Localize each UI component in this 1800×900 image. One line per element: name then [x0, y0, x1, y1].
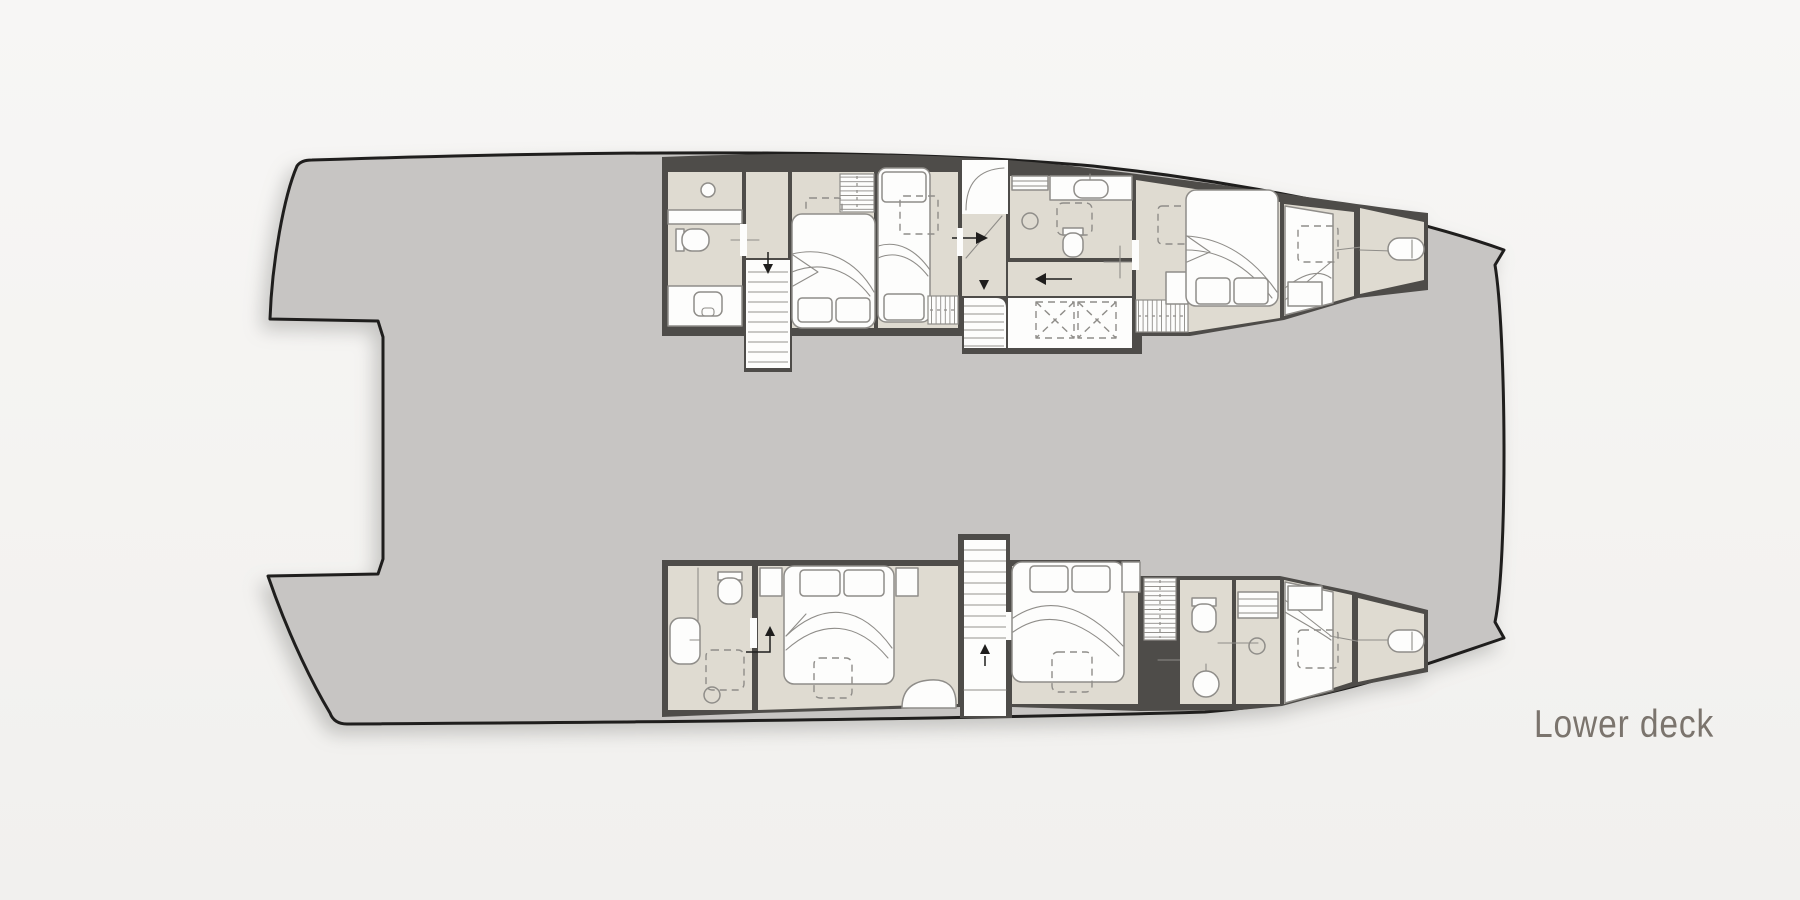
nightstand [1122, 562, 1140, 592]
shelf [1238, 592, 1278, 618]
room-aft-bathroom-starboard [668, 566, 752, 710]
shelf [1012, 176, 1048, 190]
toilet [718, 572, 742, 604]
berth-bed [878, 168, 930, 322]
room-aft-cabin-port [792, 172, 875, 328]
double-bed [784, 566, 894, 684]
toilet [1192, 598, 1216, 632]
vanity-sink [668, 286, 742, 326]
floor-plan-stage: Lower deck [0, 0, 1800, 900]
room-guest-cabin-port [878, 168, 958, 328]
berth-bed [1285, 206, 1333, 315]
nightstand [896, 568, 918, 596]
room-landing-port [1008, 262, 1132, 296]
room-cabin-starboard [1012, 562, 1140, 704]
pillow [884, 294, 924, 320]
lower-deck-floor-plan [0, 0, 1800, 900]
pillow [882, 172, 926, 202]
double-bed [1186, 190, 1278, 306]
shower-drain [701, 183, 715, 197]
pillow [836, 298, 870, 322]
berth-bed [1285, 582, 1333, 703]
pillow [844, 570, 884, 596]
deck-label: Lower deck [1534, 703, 1697, 747]
pillow [798, 298, 832, 322]
sink [670, 618, 700, 664]
nightstand [760, 568, 782, 596]
room-storage-port [1008, 298, 1132, 348]
room-bathroom-starboard [1180, 580, 1232, 704]
stowage-box [1288, 586, 1322, 610]
door-opening [1132, 240, 1139, 270]
basin [1388, 630, 1424, 652]
room-aft-bathroom-port [668, 172, 742, 326]
stowage-box [1288, 282, 1322, 306]
toilet [1063, 228, 1083, 257]
vanity-sink [1050, 174, 1132, 200]
pillow [1030, 566, 1068, 592]
pillow [1072, 566, 1110, 592]
pillow [800, 570, 840, 596]
room-aft-cabin-starboard [746, 566, 958, 710]
shower-bench [668, 210, 742, 224]
door-opening [957, 228, 963, 256]
double-bed [1012, 562, 1124, 682]
pillow [1234, 278, 1268, 304]
door-opening [1006, 612, 1012, 640]
basin [1388, 238, 1424, 260]
room-forward-locker-port [1360, 208, 1424, 294]
toilet [676, 229, 709, 251]
pillow [1196, 278, 1230, 304]
double-bed [792, 214, 875, 328]
room-midship-stairs-starboard [964, 540, 1006, 716]
room-midship-bathroom-port [1010, 174, 1132, 258]
door-opening [750, 618, 757, 648]
door-opening [740, 224, 747, 256]
room-midship-stairs-port [964, 298, 1006, 348]
cabinet [1166, 272, 1188, 304]
catamaran [268, 153, 1504, 724]
